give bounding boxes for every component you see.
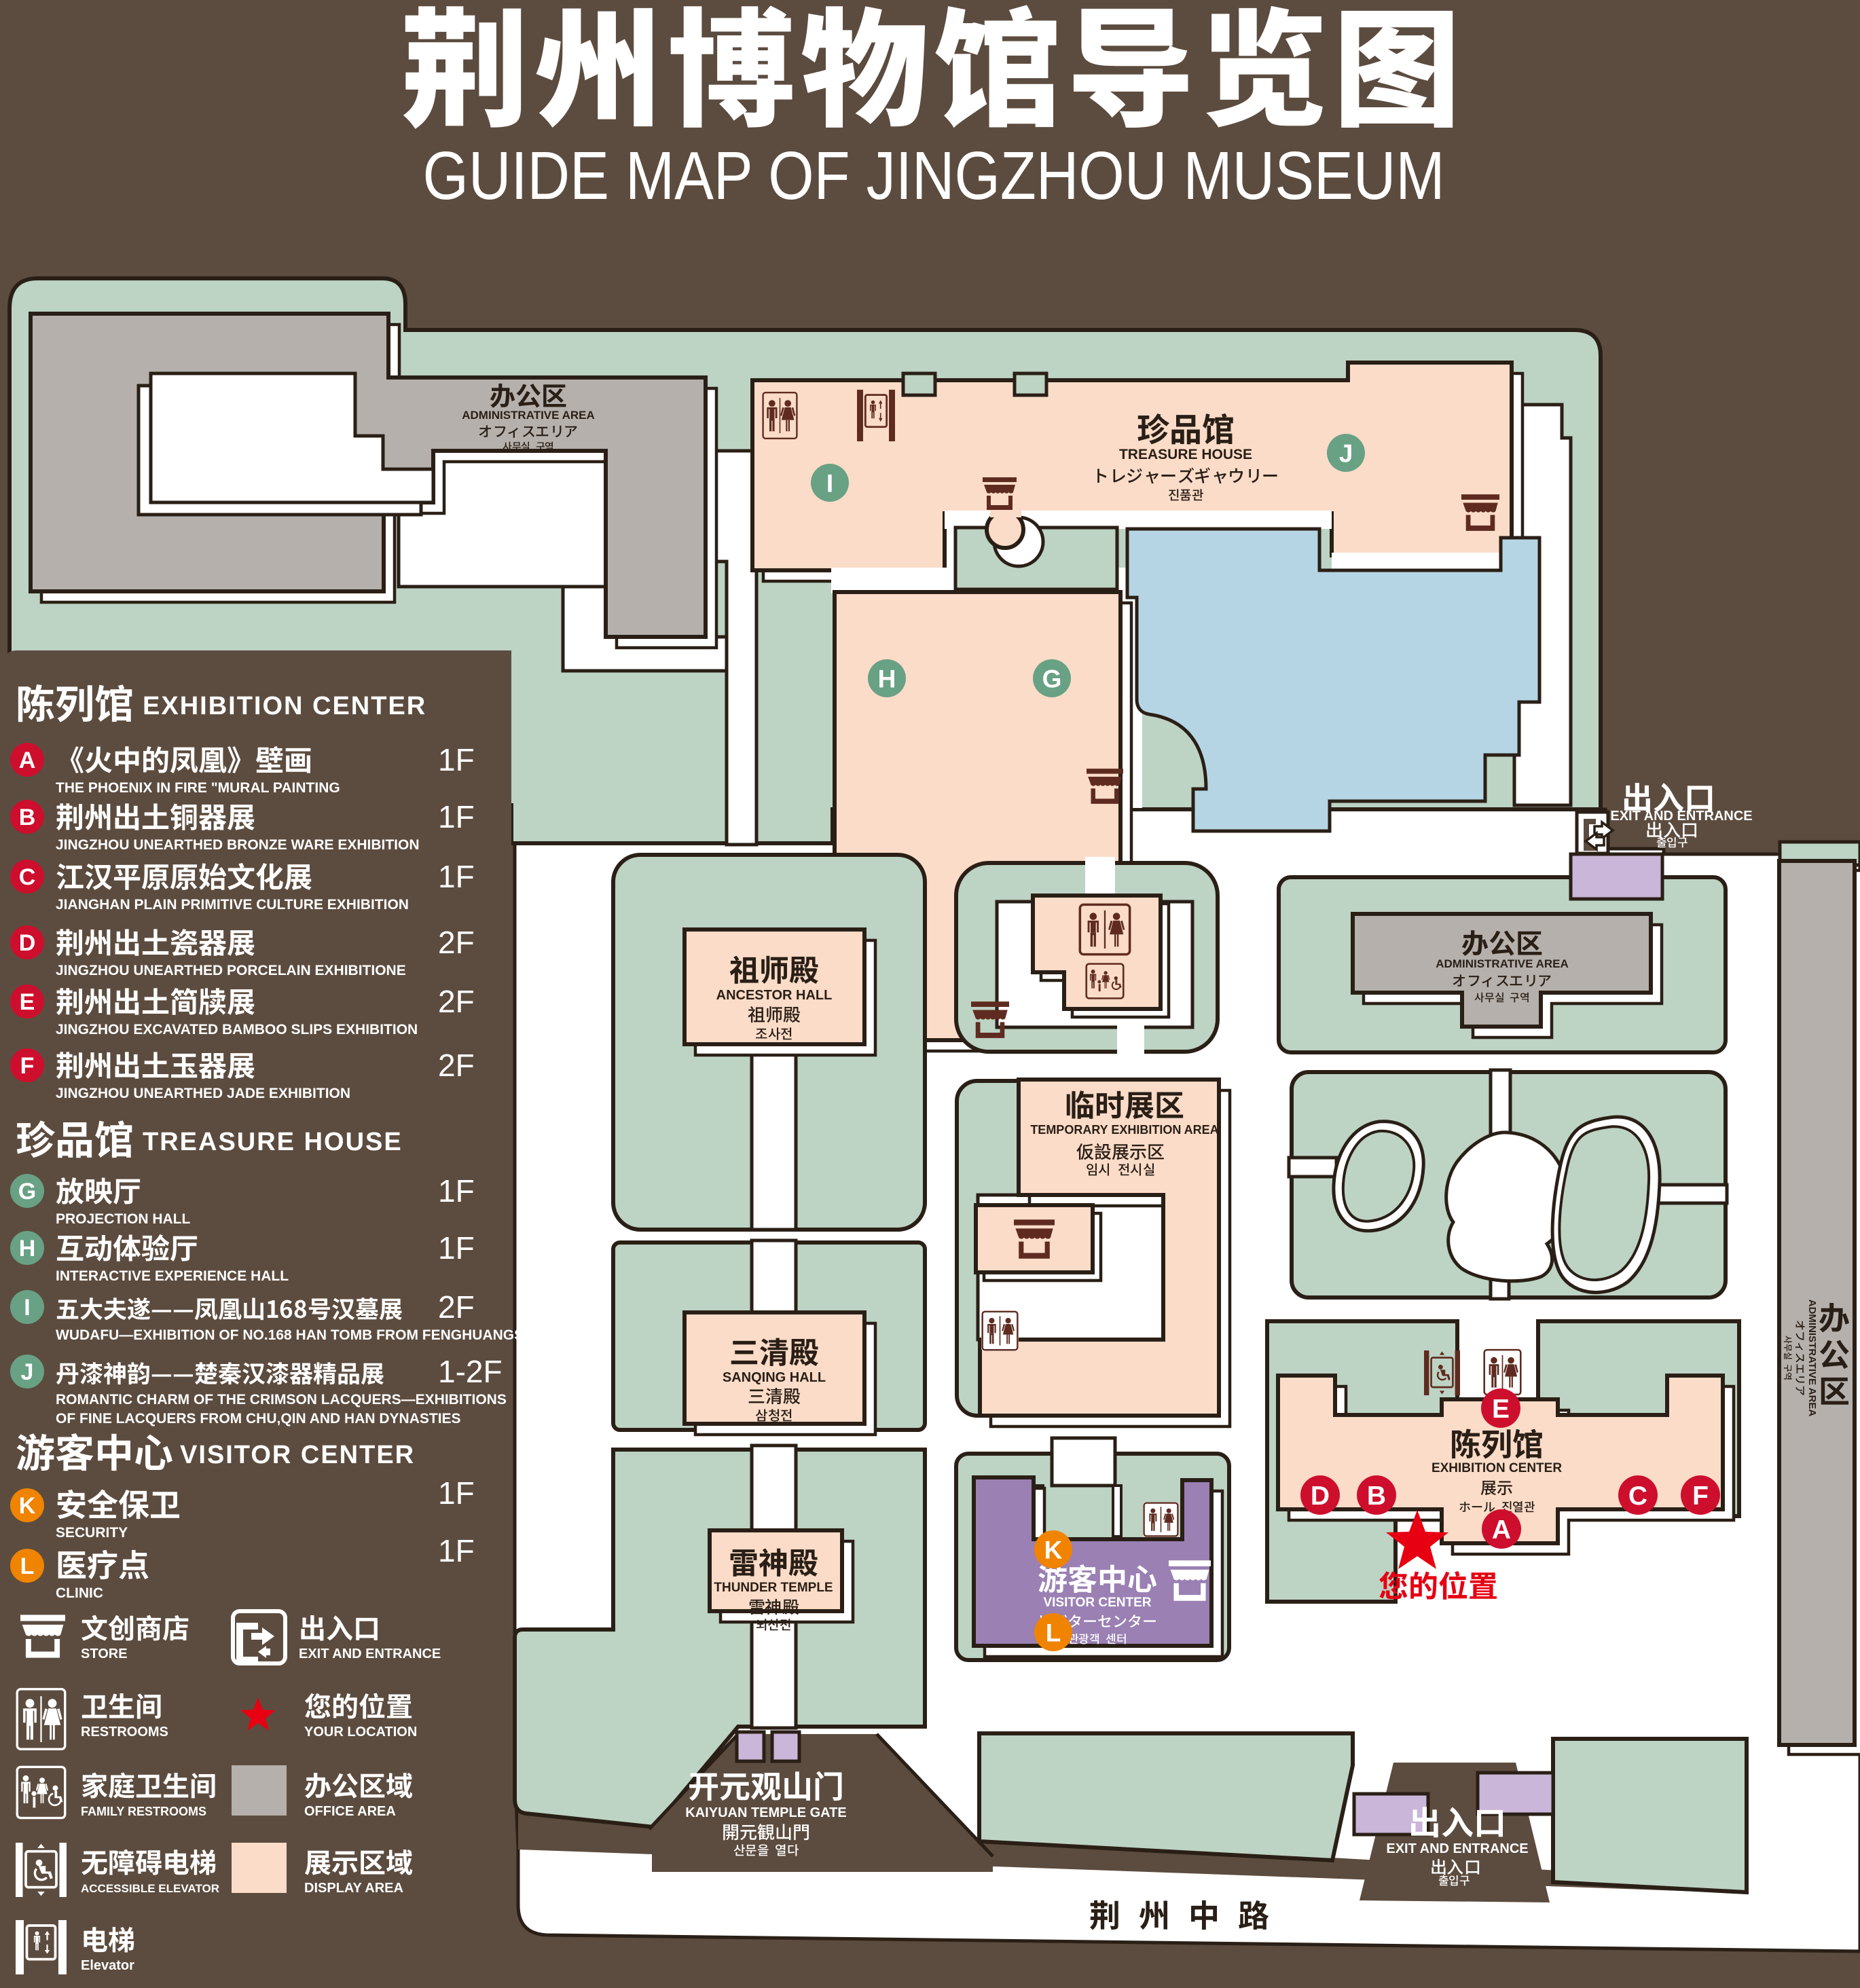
svg-text:I: I (826, 469, 833, 497)
svg-text:ROMANTIC CHARM OF THE CRIMSON: ROMANTIC CHARM OF THE CRIMSON LACQUERS—E… (56, 1392, 507, 1407)
svg-text:A: A (19, 748, 36, 773)
svg-text:RESTROOMS: RESTROOMS (81, 1725, 168, 1739)
svg-text:1F: 1F (438, 742, 475, 777)
svg-text:2F: 2F (438, 1048, 475, 1083)
svg-text:J: J (21, 1359, 34, 1385)
svg-text:L: L (1046, 1619, 1061, 1646)
svg-text:L: L (20, 1553, 35, 1579)
svg-text:EXIT AND ENTRANCE: EXIT AND ENTRANCE (299, 1646, 441, 1661)
svg-text:2F: 2F (438, 1289, 475, 1325)
svg-text:EXHIBITION CENTER: EXHIBITION CENTER (1432, 1461, 1562, 1475)
svg-text:1F: 1F (438, 1230, 475, 1266)
svg-text:I: I (24, 1295, 30, 1321)
svg-text:FAMILY RESTROOMS: FAMILY RESTROOMS (81, 1805, 206, 1818)
svg-text:B: B (19, 805, 36, 830)
svg-text:2F: 2F (438, 925, 475, 960)
svg-text:ADMINISTRATIVE AREA: ADMINISTRATIVE AREA (1436, 957, 1569, 970)
svg-text:SECURITY: SECURITY (56, 1525, 128, 1541)
svg-text:THE PHOENIX IN FIRE "MURAL PAI: THE PHOENIX IN FIRE "MURAL PAINTING (56, 780, 340, 796)
svg-text:B: B (1367, 1481, 1386, 1511)
svg-text:E: E (1492, 1395, 1510, 1424)
svg-text:1F: 1F (438, 799, 475, 834)
svg-text:INTERACTIVE EXPERIENCE HALL: INTERACTIVE EXPERIENCE HALL (56, 1268, 289, 1284)
svg-text:ACCESSIBLE ELEVATOR: ACCESSIBLE ELEVATOR (81, 1882, 219, 1895)
svg-text:1F: 1F (438, 1173, 475, 1209)
svg-text:JIANGHAN PLAIN PRIMITIVE CULTU: JIANGHAN PLAIN PRIMITIVE CULTURE EXHIBIT… (56, 897, 409, 913)
svg-text:KAIYUAN TEMPLE GATE: KAIYUAN TEMPLE GATE (685, 1805, 846, 1820)
svg-text:YOUR LOCATION: YOUR LOCATION (304, 1725, 417, 1739)
svg-text:K: K (19, 1493, 36, 1519)
svg-text:G: G (18, 1179, 36, 1204)
svg-text:ANCESTOR HALL: ANCESTOR HALL (716, 988, 833, 1003)
svg-text:STORE: STORE (81, 1646, 128, 1661)
svg-text:D: D (1311, 1481, 1330, 1511)
svg-text:C: C (1628, 1481, 1647, 1511)
svg-text:G: G (1042, 665, 1062, 693)
svg-text:Elevator: Elevator (81, 1958, 134, 1973)
svg-text:F: F (20, 1053, 35, 1079)
svg-text:1-2F: 1-2F (438, 1354, 503, 1389)
svg-text:ADMINISTRATIVE AREA: ADMINISTRATIVE AREA (1806, 1300, 1818, 1417)
svg-text:GUIDE MAP OF JINGZHOU MUSEUM: GUIDE MAP OF JINGZHOU MUSEUM (423, 138, 1445, 214)
svg-text:F: F (1692, 1481, 1709, 1511)
svg-text:TREASURE HOUSE: TREASURE HOUSE (143, 1128, 403, 1156)
svg-text:JINGZHOU UNEARTHED JADE EXHIBI: JINGZHOU UNEARTHED JADE EXHIBITION (56, 1086, 350, 1101)
svg-text:DISPLAY AREA: DISPLAY AREA (304, 1881, 403, 1896)
svg-text:J: J (1339, 439, 1353, 467)
svg-text:WUDAFU—EXHIBITION OF NO.168 HA: WUDAFU—EXHIBITION OF NO.168 HAN TOMB FRO… (56, 1327, 555, 1343)
svg-text:1F: 1F (438, 1533, 475, 1568)
svg-text:TEMPORARY EXHIBITION AREA: TEMPORARY EXHIBITION AREA (1030, 1123, 1218, 1137)
svg-text:JINGZHOU UNEARTHED PORCELAIN E: JINGZHOU UNEARTHED PORCELAIN EXHIBITIONE (56, 963, 406, 978)
svg-text:A: A (1492, 1515, 1511, 1545)
svg-text:THUNDER TEMPLE: THUNDER TEMPLE (714, 1581, 833, 1595)
svg-text:CLINIC: CLINIC (56, 1585, 103, 1601)
svg-text:2F: 2F (438, 984, 475, 1019)
svg-text:EXHIBITION CENTER: EXHIBITION CENTER (143, 692, 426, 720)
svg-text:D: D (19, 930, 36, 956)
svg-text:E: E (20, 989, 35, 1015)
svg-text:JINGZHOU EXCAVATED BAMBOO SLIP: JINGZHOU EXCAVATED BAMBOO SLIPS EXHIBITI… (56, 1022, 418, 1037)
svg-text:H: H (878, 665, 896, 693)
svg-text:PROJECTION HALL: PROJECTION HALL (56, 1211, 191, 1227)
svg-text:EXIT AND ENTRANCE: EXIT AND ENTRANCE (1386, 1841, 1528, 1856)
svg-text:C: C (19, 864, 36, 890)
svg-text:JINGZHOU UNEARTHED BRONZE WARE: JINGZHOU UNEARTHED BRONZE WARE EXHIBITIO… (56, 837, 420, 853)
svg-text:OFFICE AREA: OFFICE AREA (304, 1804, 396, 1819)
svg-text:EXIT AND ENTRANCE: EXIT AND ENTRANCE (1610, 809, 1752, 824)
svg-text:VISITOR CENTER: VISITOR CENTER (180, 1441, 415, 1469)
svg-text:1F: 1F (438, 859, 475, 894)
svg-text:TREASURE HOUSE: TREASURE HOUSE (1119, 447, 1252, 462)
svg-text:H: H (19, 1236, 36, 1262)
svg-text:OF FINE LACQUERS FROM CHU,QIN: OF FINE LACQUERS FROM CHU,QIN AND HAN DY… (56, 1411, 461, 1426)
svg-text:K: K (1044, 1536, 1063, 1564)
svg-text:ADMINISTRATIVE AREA: ADMINISTRATIVE AREA (462, 409, 595, 422)
svg-text:SANQING HALL: SANQING HALL (723, 1370, 826, 1385)
svg-text:1F: 1F (438, 1475, 475, 1511)
svg-text:VISITOR CENTER: VISITOR CENTER (1043, 1596, 1151, 1610)
